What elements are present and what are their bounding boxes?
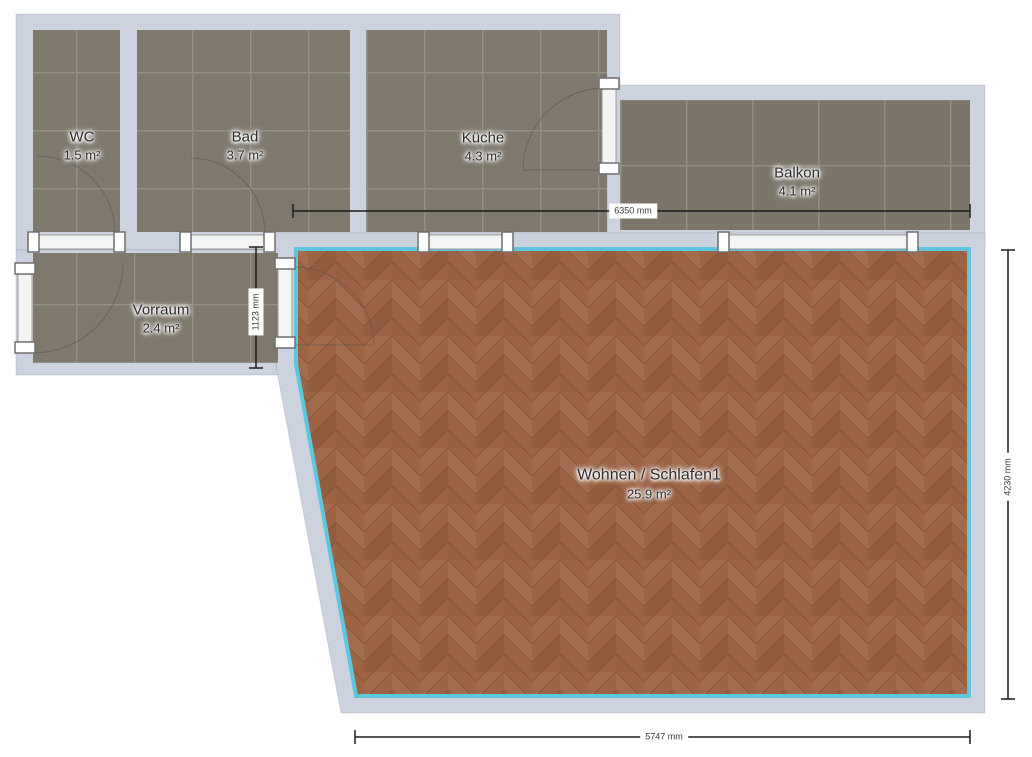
door-balkon-sliding[interactable] — [718, 232, 918, 252]
window-kueche-right[interactable] — [599, 78, 619, 174]
dimension-label-top-width: 6350 mm — [609, 204, 657, 219]
room-name: Vorraum — [133, 301, 190, 320]
dimension-label-right-height: 4230 mm — [1001, 453, 1016, 501]
room-label-kueche: Küche 4.3 m² — [462, 129, 505, 166]
dimension-label-bottom-width: 5747 mm — [640, 730, 688, 745]
door-vorraum-wohnen[interactable] — [275, 258, 295, 348]
door-entrance[interactable] — [15, 263, 35, 353]
room-name: Küche — [462, 129, 505, 148]
room-name: Balkon — [774, 164, 820, 183]
room-name: Wohnen / Schlafen1 — [577, 465, 721, 486]
room-area: 3.7 m² — [227, 147, 264, 165]
dimension-label-vorraum-depth: 1123 mm — [249, 289, 264, 336]
room-label-wc: WC 1.5 m² — [64, 128, 101, 165]
door-wc[interactable] — [28, 232, 125, 252]
room-label-wohnen-schlafen: Wohnen / Schlafen1 25.9 m² — [577, 465, 721, 504]
room-area: 1.5 m² — [64, 147, 101, 165]
floor-plan-svg — [0, 0, 1032, 757]
room-area: 2.4 m² — [133, 320, 190, 338]
room-area: 25.9 m² — [577, 486, 721, 504]
room-name: Bad — [227, 128, 264, 147]
door-kueche[interactable] — [418, 232, 513, 252]
room-label-vorraum: Vorraum 2.4 m² — [133, 301, 190, 338]
room-area: 4.3 m² — [462, 148, 505, 166]
room-area: 4.1 m² — [774, 183, 820, 201]
room-label-bad: Bad 3.7 m² — [227, 128, 264, 165]
room-label-balkon: Balkon 4.1 m² — [774, 164, 820, 201]
floor-plan-canvas: WC 1.5 m² Bad 3.7 m² Küche 4.3 m² Balkon… — [0, 0, 1032, 757]
door-bad[interactable] — [180, 232, 275, 252]
room-name: WC — [64, 128, 101, 147]
